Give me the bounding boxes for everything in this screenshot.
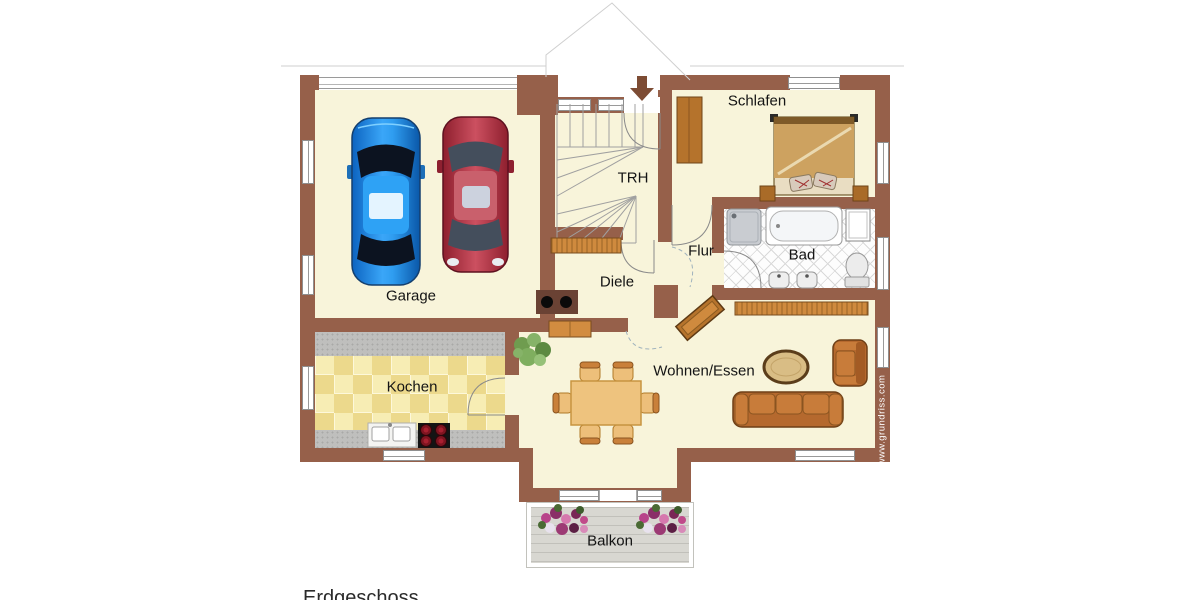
window (877, 142, 889, 184)
wall-garage-kitchen (300, 318, 628, 332)
wall-entrance-pillar (591, 97, 598, 113)
kitchen-counter-bottom (315, 430, 505, 448)
chimney (536, 290, 578, 314)
label-schlafen: Schlafen (728, 93, 786, 110)
entrance-recess (556, 75, 660, 97)
label-flur: Flur (688, 243, 714, 260)
wall-bay-right (677, 462, 691, 502)
entrance-door-opening (624, 97, 660, 113)
window (383, 450, 425, 461)
balcony-door-opening (599, 490, 637, 501)
floor-plan: Garage TRH Schlafen Bad Flur Diele Koche… (0, 0, 1200, 600)
label-balkon: Balkon (587, 533, 633, 550)
window (795, 450, 855, 461)
window (559, 490, 599, 501)
window (302, 140, 314, 184)
wall-pier-diele (654, 285, 678, 318)
label-garage: Garage (386, 288, 436, 305)
wall-top-corner (300, 75, 319, 90)
garage-door (319, 77, 517, 89)
label-diele: Diele (600, 274, 634, 291)
wall-bottom-right (677, 448, 890, 462)
window (558, 99, 591, 111)
label-trh: TRH (618, 170, 649, 187)
window (302, 366, 314, 410)
bay-floor (533, 448, 677, 488)
window (877, 327, 889, 368)
window (302, 255, 314, 295)
label-kochen: Kochen (387, 379, 438, 396)
wall-top-far-right (840, 75, 890, 90)
window (637, 490, 662, 501)
window (598, 99, 624, 111)
window (788, 77, 840, 89)
kitchen-door-opening (505, 375, 519, 415)
wall-top-right (660, 75, 790, 90)
wall-bad-bottom (712, 288, 875, 300)
floor-caption: Erdgeschoss (303, 587, 419, 600)
watermark: www.grundriss.com (877, 375, 888, 466)
roof-outline (281, 3, 904, 80)
label-wohnen-essen: Wohnen/Essen (653, 363, 754, 380)
wall-trh-schlafen (658, 90, 672, 242)
kitchen-counter-top (315, 332, 505, 356)
label-bad: Bad (789, 247, 816, 264)
wall-trh-diele (555, 227, 623, 240)
wall-bad-top (712, 197, 875, 209)
window (877, 237, 889, 290)
